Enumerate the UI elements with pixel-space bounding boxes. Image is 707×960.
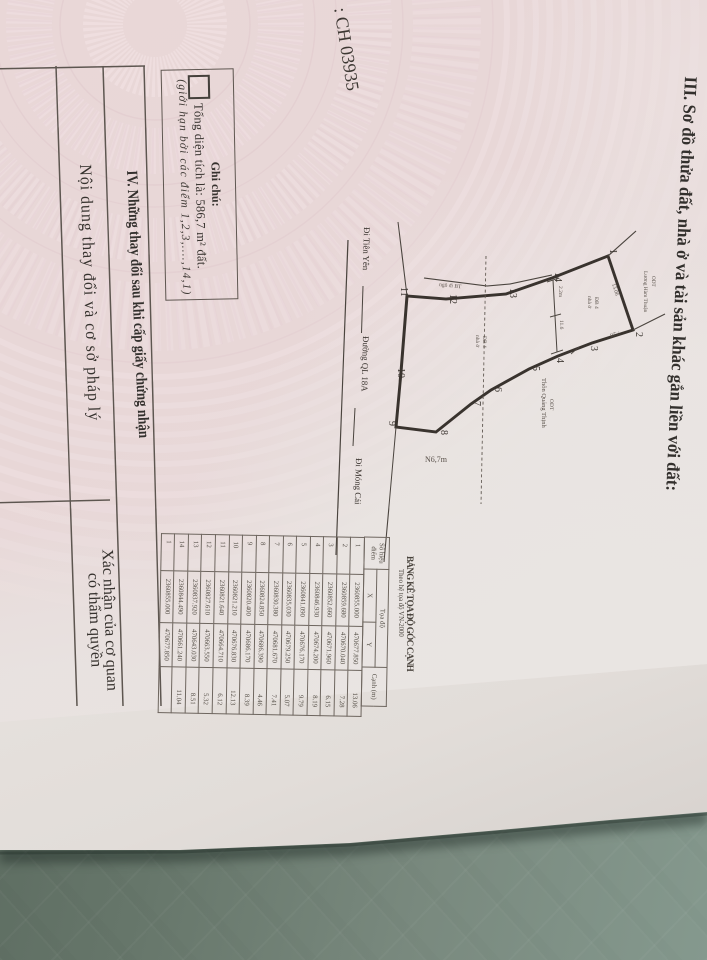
svg-text:13: 13 xyxy=(507,288,518,298)
svg-text:5: 5 xyxy=(530,366,541,371)
svg-text:ĐB 4: ĐB 4 xyxy=(481,336,487,348)
svg-text:ngõ đi BT: ngõ đi BT xyxy=(439,282,462,290)
svg-text:7: 7 xyxy=(471,401,482,406)
svg-text:Đường QL 18A: Đường QL 18A xyxy=(360,336,371,392)
svg-text:8: 8 xyxy=(438,430,449,435)
svg-text:11: 11 xyxy=(398,287,409,297)
svg-text:10: 10 xyxy=(395,368,406,378)
svg-text:Đi Tiên Yên: Đi Tiên Yên xyxy=(361,227,372,271)
svg-text:ODT: ODT xyxy=(548,399,554,411)
svg-text:6: 6 xyxy=(492,387,503,392)
svg-text:Lương Hàm Thuận: Lương Hàm Thuận xyxy=(642,271,648,313)
svg-text:14: 14 xyxy=(552,272,563,282)
svg-text:Đi Móng Cái: Đi Móng Cái xyxy=(353,458,364,505)
svg-text:ĐB 4: ĐB 4 xyxy=(593,297,599,309)
svg-text:Thôn Quảng Thịnh: Thôn Quảng Thịnh xyxy=(540,378,547,428)
svg-text:nhà ở: nhà ở xyxy=(586,296,592,308)
svg-text:nhà ở: nhà ở xyxy=(474,335,480,347)
svg-text:3: 3 xyxy=(588,346,599,351)
svg-text:4: 4 xyxy=(554,358,565,363)
svg-text:12: 12 xyxy=(447,294,458,304)
svg-text:11.6: 11.6 xyxy=(558,320,564,330)
svg-text:1: 1 xyxy=(607,249,618,254)
svg-text:2: 2 xyxy=(633,332,644,337)
svg-text:2.2m: 2.2m xyxy=(557,286,563,298)
svg-text:9: 9 xyxy=(386,421,397,426)
svg-text:ODT: ODT xyxy=(650,276,656,287)
svg-text:N6,7m: N6,7m xyxy=(425,455,448,464)
